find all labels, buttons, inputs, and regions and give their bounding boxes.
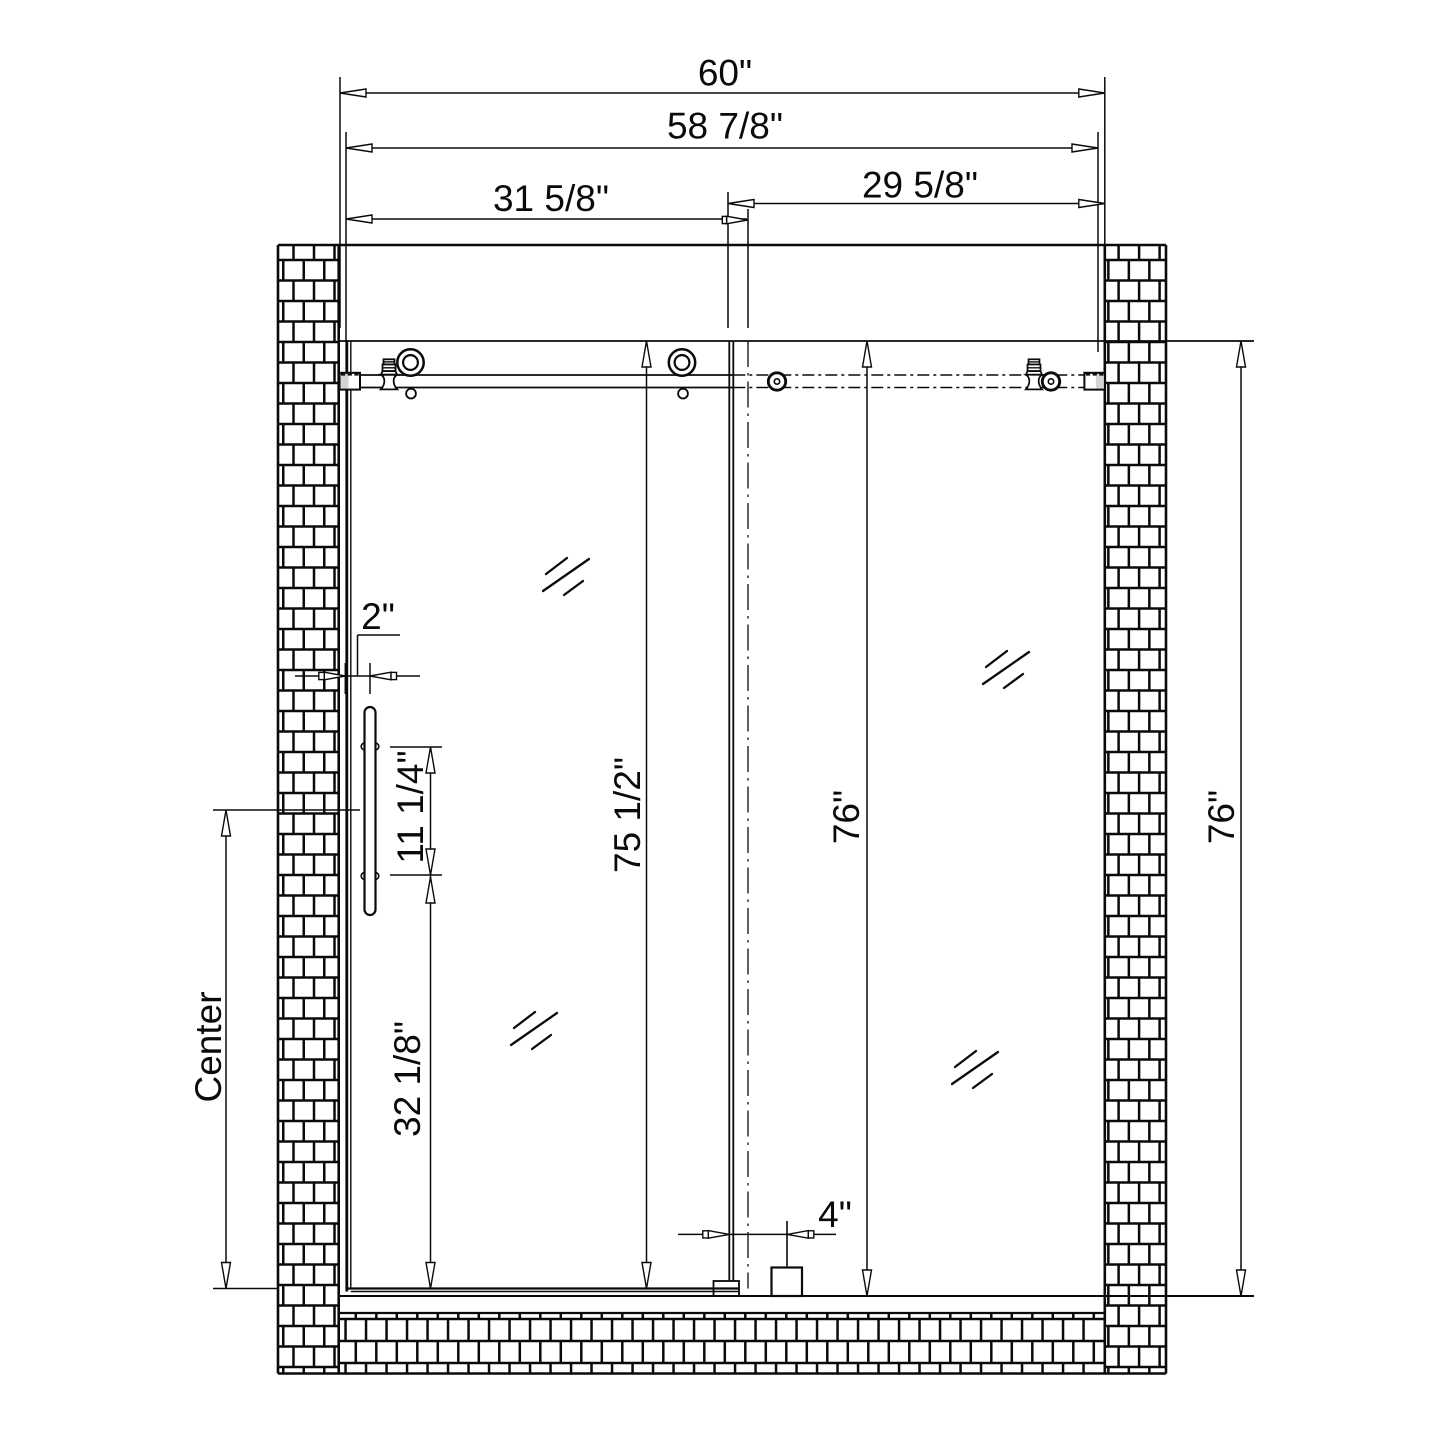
svg-text:58 7/8": 58 7/8" [667,106,783,147]
svg-text:4": 4" [818,1194,852,1235]
svg-text:76": 76" [1201,790,1242,844]
svg-text:Center: Center [188,991,229,1102]
svg-text:75 1/2": 75 1/2" [607,757,648,873]
svg-text:32 1/8": 32 1/8" [387,1021,428,1137]
svg-text:2": 2" [361,596,395,637]
svg-text:29 5/8": 29 5/8" [862,165,978,206]
svg-text:11 1/4": 11 1/4" [390,750,431,863]
svg-text:31 5/8": 31 5/8" [493,178,609,219]
svg-text:76": 76" [826,790,867,844]
svg-text:60": 60" [698,53,752,94]
